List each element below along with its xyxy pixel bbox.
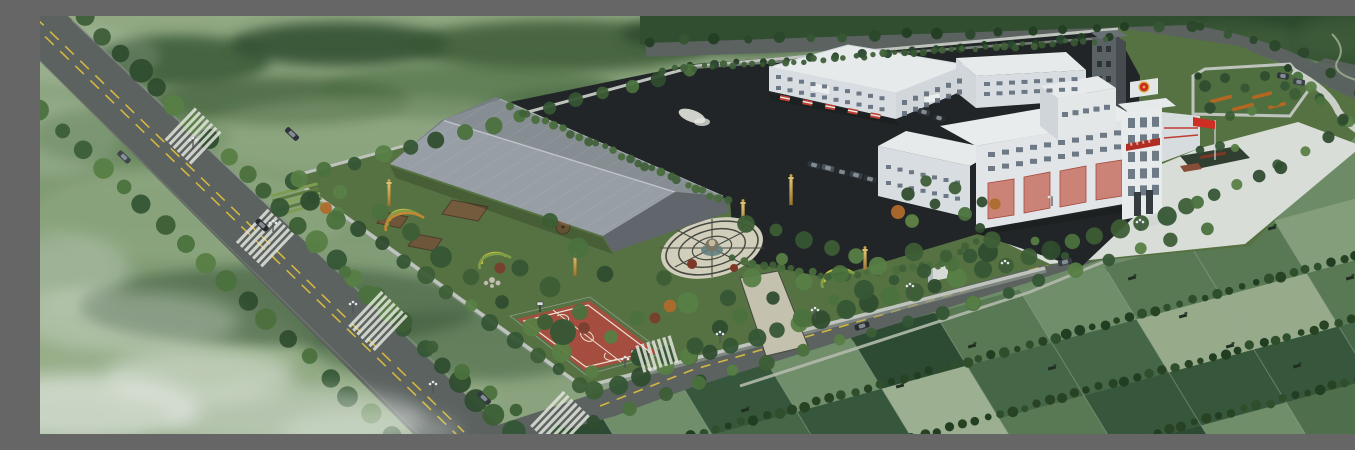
site-rendering: Aerial architectural rendering of a wall… (40, 16, 1355, 434)
color-grade (40, 16, 1355, 434)
rendering-canvas (40, 16, 1355, 434)
